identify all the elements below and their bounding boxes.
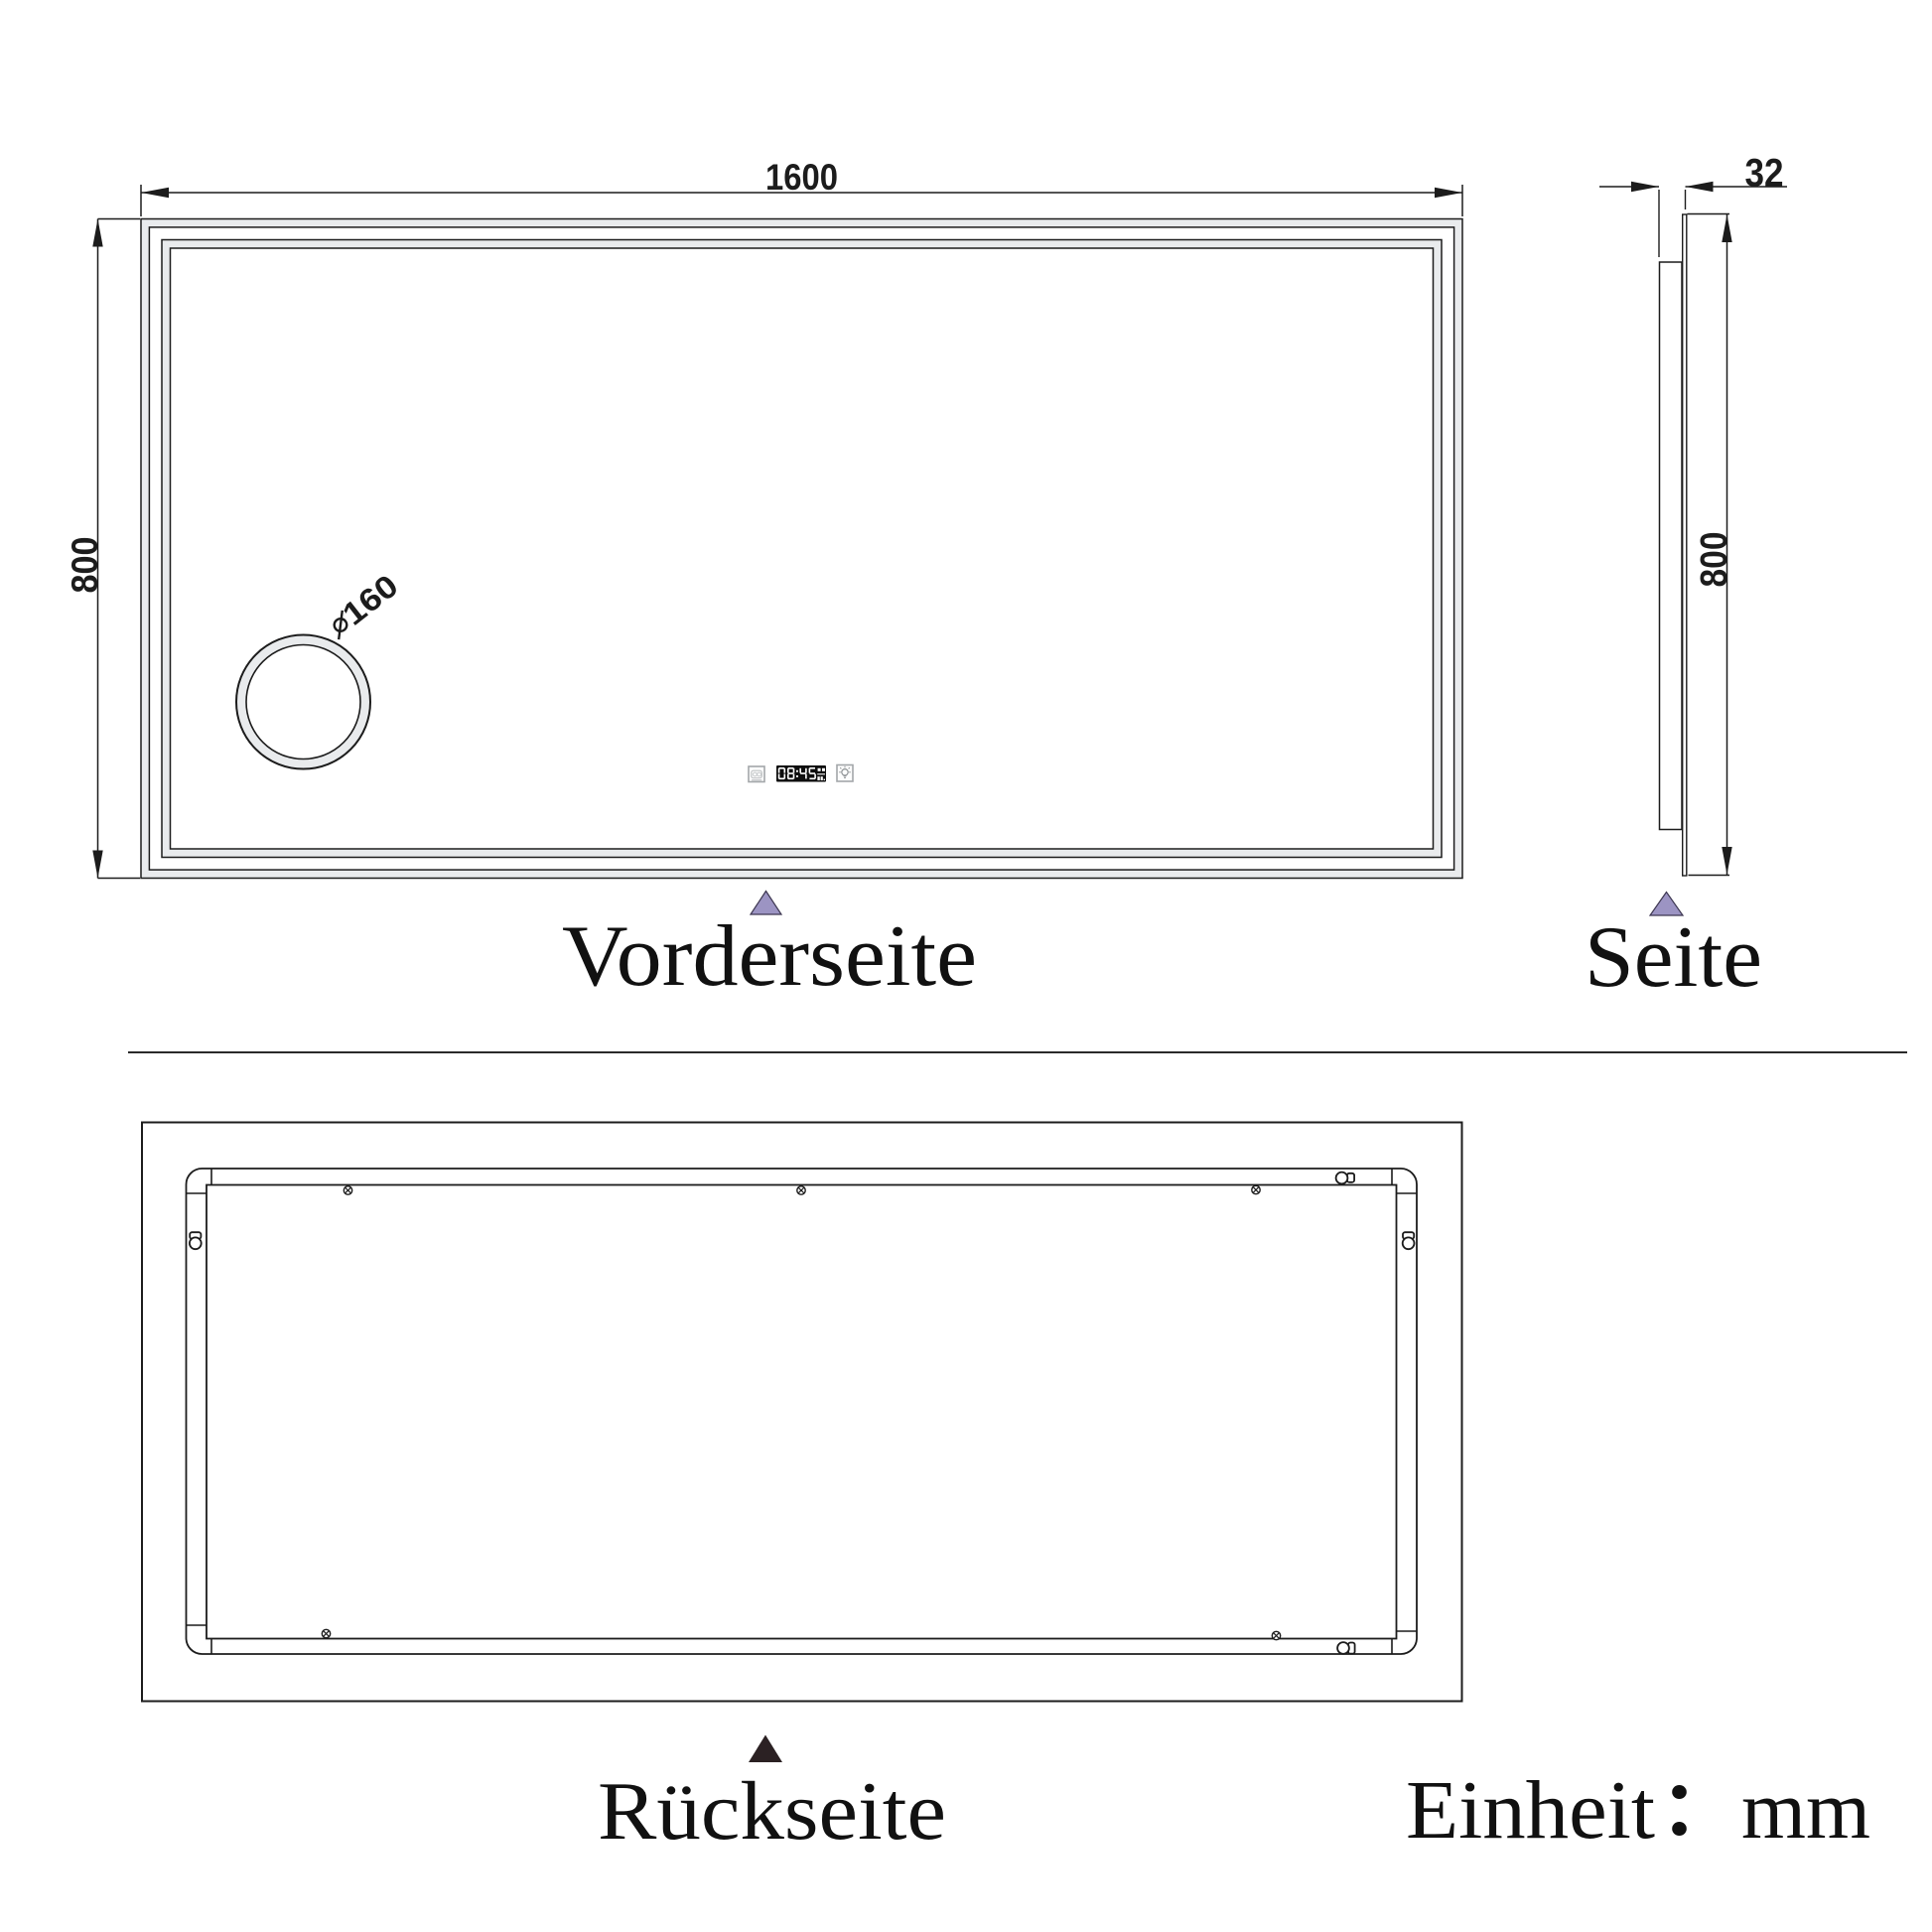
- svg-text:Seite: Seite: [1585, 909, 1762, 1006]
- svg-text:mm: mm: [1741, 1764, 1870, 1857]
- svg-text:Vorderseite: Vorderseite: [562, 908, 977, 1005]
- svg-text:1600: 1600: [765, 157, 838, 198]
- svg-text:32: 32: [1745, 152, 1784, 196]
- svg-text:800: 800: [1694, 532, 1735, 588]
- svg-text:800: 800: [65, 537, 105, 594]
- svg-text:Einheit: Einheit: [1406, 1764, 1655, 1857]
- svg-text:Rückseite: Rückseite: [598, 1765, 946, 1858]
